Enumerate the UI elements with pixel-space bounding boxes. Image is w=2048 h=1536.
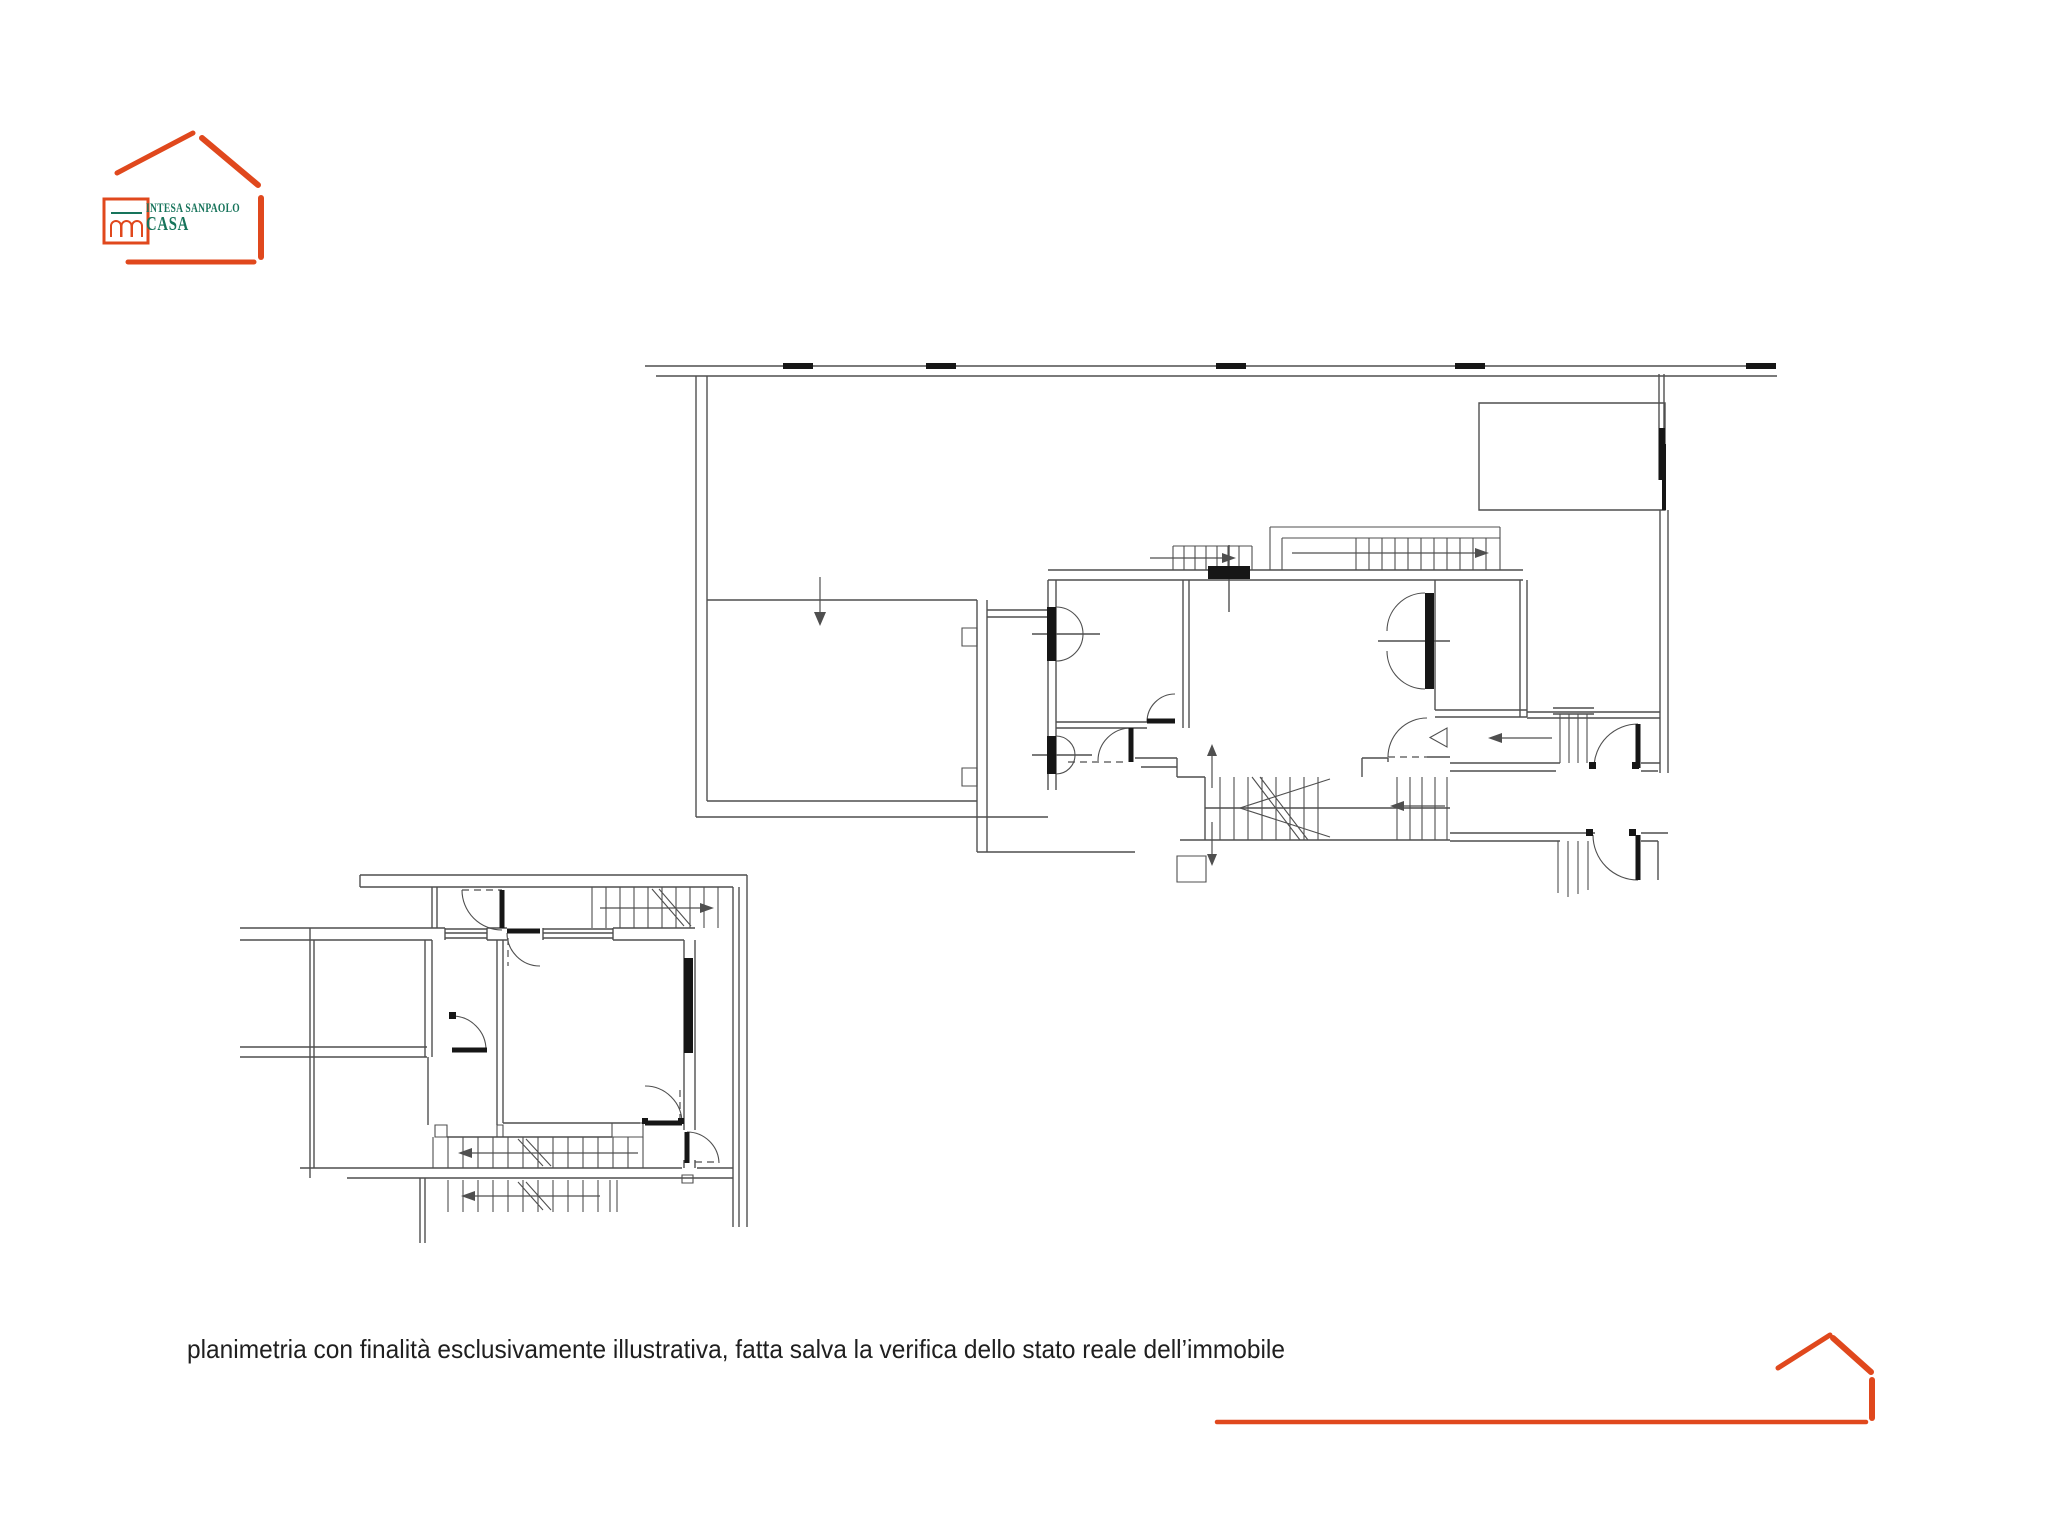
main-plan-walls bbox=[645, 366, 1777, 880]
main-floor-plan bbox=[645, 363, 1777, 897]
footer-house-logo bbox=[1217, 1335, 1872, 1422]
house-sketch-icon bbox=[1778, 1335, 1872, 1418]
floor-plan-document: INTESA SANPAOLO CASA bbox=[0, 0, 2048, 1536]
lower-window-bars bbox=[449, 958, 693, 1124]
disclaimer-text: planimetria con finalità esclusivamente … bbox=[187, 1334, 1285, 1364]
product-name: CASA bbox=[146, 213, 189, 235]
door-arcs bbox=[1056, 593, 1638, 880]
door-leaves bbox=[1131, 721, 1638, 880]
lower-floor-plan bbox=[240, 875, 747, 1243]
entry-triangle-marker bbox=[1430, 728, 1447, 747]
intesa-sanpaolo-casa-logo: INTESA SANPAOLO CASA bbox=[104, 133, 261, 262]
arches-icon bbox=[104, 199, 148, 243]
